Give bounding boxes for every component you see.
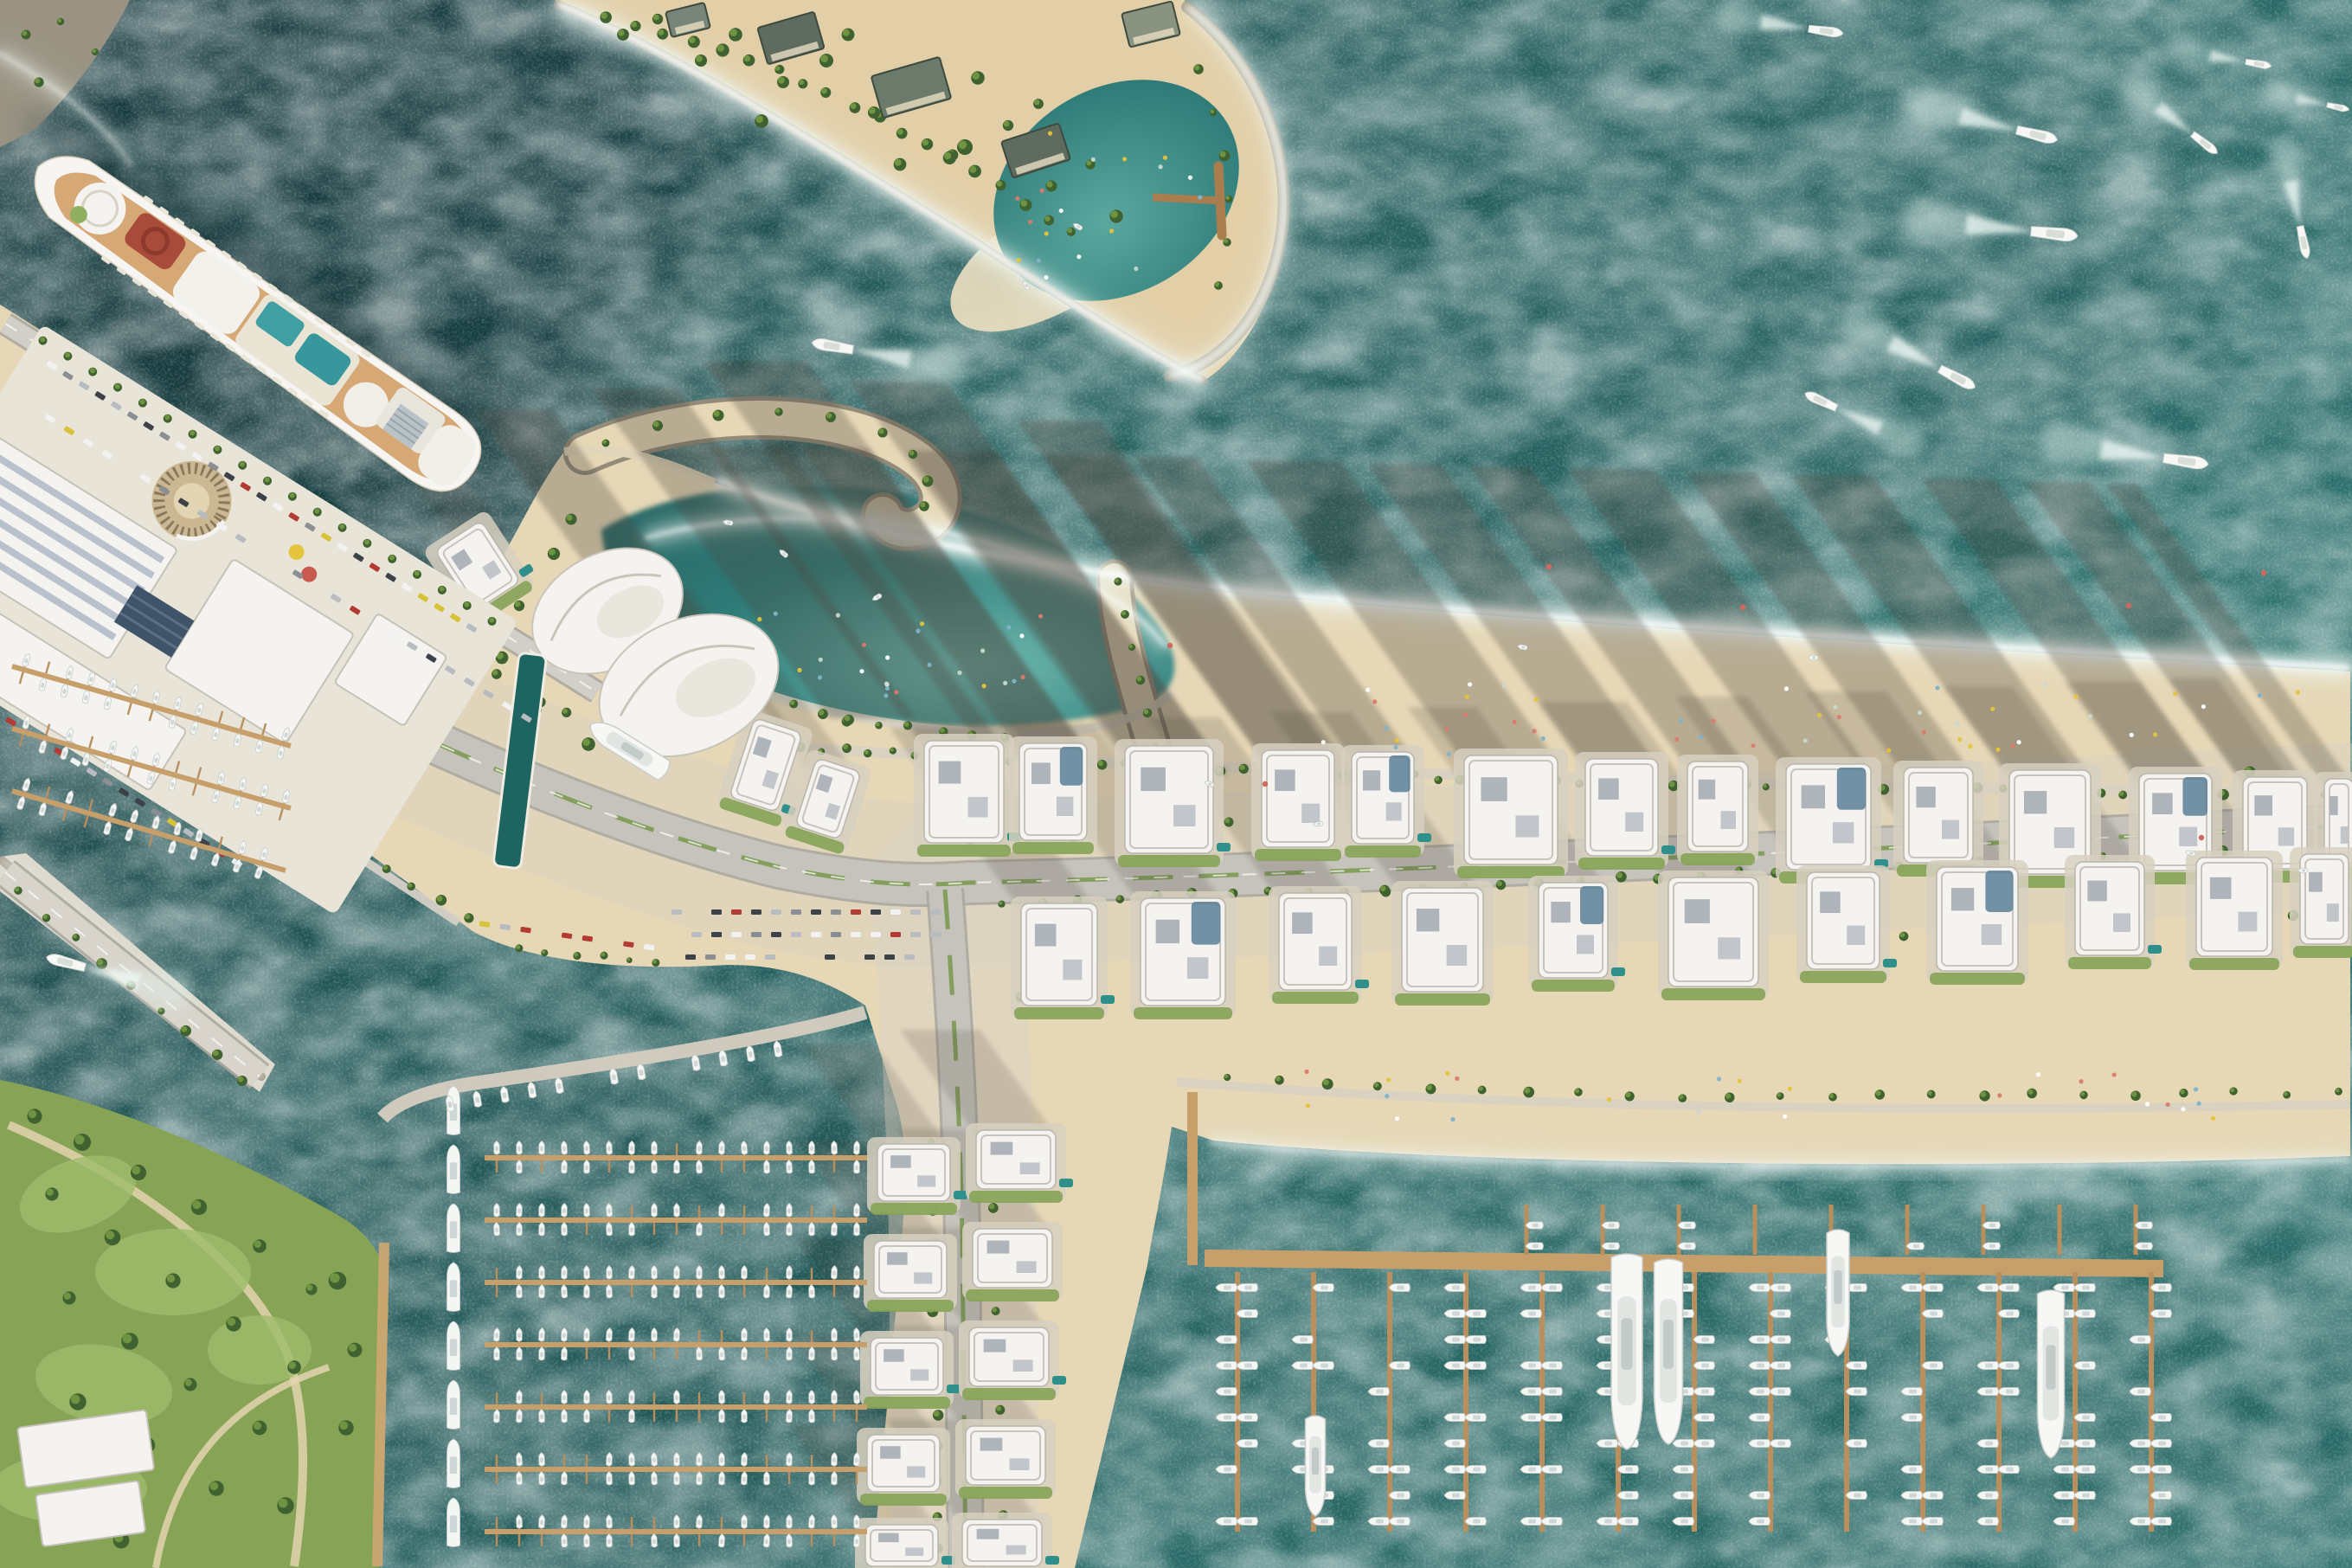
moored-boat	[1520, 1310, 1542, 1318]
moored-boat	[1541, 1518, 1563, 1526]
moored-boat	[2053, 1466, 2075, 1474]
moored-boat	[809, 1390, 815, 1404]
moored-boat	[494, 1203, 499, 1217]
moored-boat	[1693, 1336, 1715, 1344]
moored-boat	[1526, 1222, 1544, 1229]
moored-boat	[539, 1265, 545, 1279]
moored-boat	[1216, 1466, 1237, 1474]
moored-boat	[1749, 1336, 1770, 1344]
moored-boat	[1216, 1414, 1237, 1422]
tower	[1115, 739, 1231, 867]
moored-boat	[1770, 1362, 1791, 1370]
moored-boat	[539, 1284, 545, 1298]
moored-boat	[1597, 1518, 1618, 1526]
moored-boat	[562, 1409, 568, 1423]
moored-boat	[1846, 1388, 1867, 1396]
tower	[867, 1137, 967, 1215]
moored-boat	[2130, 1466, 2151, 1474]
moored-boat	[1998, 1362, 2020, 1370]
moored-boat	[854, 1203, 860, 1217]
moored-boat	[1520, 1284, 1542, 1292]
tower	[1269, 886, 1369, 1004]
moored-boat	[719, 1452, 725, 1466]
tower	[1454, 749, 1568, 878]
moored-boat	[1520, 1518, 1542, 1526]
moored-boat	[2150, 1466, 2172, 1474]
moored-boat	[1444, 1362, 1466, 1370]
moored-boat	[1444, 1492, 1466, 1500]
moored-boat	[742, 1514, 748, 1528]
moored-boat	[2053, 1518, 2075, 1526]
moored-boat	[539, 1203, 545, 1217]
moored-boat	[1216, 1362, 1237, 1370]
moored-boat	[2130, 1518, 2151, 1526]
moored-boat	[787, 1390, 793, 1404]
moored-boat	[562, 1203, 568, 1217]
moored-boat	[787, 1514, 792, 1528]
tower	[1575, 752, 1675, 870]
moored-boat	[2150, 1492, 2172, 1500]
tower	[959, 1321, 1066, 1400]
moored-boat	[1770, 1284, 1791, 1292]
moored-boat	[1901, 1518, 1923, 1526]
moored-boat	[584, 1533, 590, 1547]
moored-boat	[742, 1409, 748, 1423]
moored-boat	[2298, 869, 2309, 873]
moored-boat	[539, 1222, 545, 1236]
moored-boat	[2150, 1518, 2172, 1526]
moored-boat	[1906, 1243, 1925, 1250]
moored-boat	[2150, 1414, 2172, 1422]
moored-boat	[1237, 1414, 1258, 1422]
moored-boat	[1520, 1388, 1542, 1396]
moored-boat	[2074, 1440, 2096, 1448]
moored-boat	[697, 1265, 703, 1279]
moored-boat	[1617, 1466, 1639, 1474]
moored-boat	[1389, 1284, 1411, 1292]
moored-boat	[764, 1141, 770, 1154]
moored-boat	[1617, 1492, 1639, 1500]
buoy	[2261, 570, 2266, 575]
tower	[966, 1123, 1073, 1203]
tower	[857, 1428, 950, 1506]
moored-boat	[1770, 1310, 1791, 1318]
moored-boat	[517, 1265, 523, 1279]
moored-boat	[517, 1222, 523, 1236]
moored-boat	[1368, 1518, 1390, 1526]
yacht	[1306, 1416, 1326, 1516]
moored-boat	[854, 1222, 860, 1236]
moored-boat	[1998, 1284, 2020, 1292]
tower	[864, 1234, 957, 1312]
moored-boat	[652, 1141, 658, 1154]
tower	[1796, 865, 1897, 983]
moored-boat	[1901, 1492, 1923, 1500]
moored-boat	[854, 1160, 860, 1173]
tower	[914, 734, 1021, 857]
tower	[2186, 851, 2283, 970]
moored-boat	[1693, 1414, 1715, 1422]
moored-boat	[447, 1321, 460, 1371]
moored-boat	[1749, 1284, 1770, 1292]
tower	[1776, 757, 1888, 884]
moored-boat	[2074, 1284, 2096, 1292]
moored-boat	[1292, 1336, 1314, 1344]
yacht	[2038, 1290, 2065, 1458]
moored-boat	[1444, 1310, 1466, 1318]
moored-boat	[652, 1327, 658, 1341]
moored-boat	[697, 1452, 703, 1466]
tower	[962, 1222, 1063, 1301]
tower	[1251, 743, 1345, 861]
moored-boat	[1313, 1362, 1334, 1370]
moored-boat	[1520, 1362, 1542, 1370]
moored-boat	[1982, 1243, 2001, 1250]
moored-boat	[1693, 1388, 1715, 1396]
moored-boat	[742, 1265, 748, 1279]
moored-boat	[1602, 1222, 1620, 1229]
moored-boat	[2074, 1362, 2096, 1370]
moored-boat	[562, 1222, 568, 1236]
buoy	[1740, 605, 1745, 610]
moored-boat	[1389, 1466, 1411, 1474]
moored-boat	[1901, 1414, 1923, 1422]
moored-boat	[1977, 1284, 1999, 1292]
moored-boat	[1465, 1336, 1487, 1344]
moored-boat	[1846, 1362, 1867, 1370]
tower	[955, 1419, 1056, 1499]
tower	[1341, 745, 1431, 858]
moored-boat	[1541, 1362, 1563, 1370]
moored-boat	[1977, 1492, 1999, 1500]
moored-boat	[2074, 1310, 2096, 1318]
moored-boat	[1237, 1440, 1258, 1448]
moored-boat	[674, 1452, 680, 1466]
moored-boat	[697, 1141, 703, 1154]
moored-boat	[809, 1160, 815, 1173]
moored-boat	[584, 1390, 590, 1404]
buoy	[1546, 564, 1552, 569]
moored-boat	[584, 1284, 590, 1298]
tower	[1009, 736, 1097, 854]
tower	[1528, 876, 1625, 992]
moored-boat	[517, 1327, 523, 1341]
moored-boat	[629, 1141, 635, 1154]
moored-boat	[607, 1265, 612, 1279]
tower	[1893, 761, 1983, 877]
moored-boat	[1541, 1414, 1563, 1422]
tower	[1130, 891, 1236, 1019]
moored-boat	[1526, 1243, 1544, 1250]
moored-boat	[1444, 1284, 1466, 1292]
moored-boat	[1368, 1440, 1390, 1448]
moored-boat	[539, 1141, 544, 1154]
moored-boat	[1749, 1440, 1770, 1448]
moored-boat	[447, 1498, 460, 1547]
moored-boat	[1389, 1518, 1411, 1526]
moored-boat	[1922, 1310, 1944, 1318]
moored-boat	[1922, 1518, 1944, 1526]
moored-boat	[1292, 1362, 1314, 1370]
moored-boat	[1237, 1362, 1258, 1370]
moored-boat	[1922, 1284, 1944, 1292]
moored-boat	[1809, 656, 1819, 660]
moored-boat	[854, 1514, 860, 1528]
moored-boat	[1678, 1222, 1696, 1229]
tower	[1677, 755, 1758, 865]
moored-boat	[787, 1346, 793, 1360]
moored-boat	[2135, 1243, 2153, 1250]
moored-boat	[517, 1160, 523, 1173]
moored-boat	[674, 1390, 680, 1404]
moored-boat	[697, 1284, 703, 1298]
moored-boat	[629, 1222, 635, 1236]
tower	[952, 1513, 1059, 1568]
moored-boat	[2074, 1466, 2096, 1474]
moored-boat	[1541, 1466, 1563, 1474]
moored-boat	[652, 1284, 658, 1298]
moored-boat	[1901, 1388, 1923, 1396]
moored-boat	[787, 1203, 793, 1217]
moored-boat	[1770, 1388, 1791, 1396]
moored-boat	[674, 1533, 680, 1547]
moored-boat	[742, 1327, 748, 1341]
moored-boat	[1237, 1518, 1258, 1526]
moored-boat	[447, 1204, 460, 1253]
moored-boat	[1465, 1414, 1487, 1422]
moored-boat	[1998, 1388, 2020, 1396]
moored-boat	[1673, 1492, 1694, 1500]
moored-boat	[517, 1141, 523, 1154]
moored-boat	[1977, 1362, 1999, 1370]
moored-boat	[2150, 1440, 2172, 1448]
moored-boat	[809, 1471, 815, 1485]
moored-boat	[719, 1203, 725, 1217]
moored-boat	[2074, 1414, 2096, 1422]
moored-boat	[2130, 1440, 2151, 1448]
moored-boat	[1678, 1243, 1696, 1250]
moored-boat	[1465, 1518, 1487, 1526]
moored-boat	[1922, 1492, 1944, 1500]
moored-boat	[764, 1471, 770, 1485]
moored-boat	[2053, 1492, 2075, 1500]
moored-boat	[1749, 1414, 1770, 1422]
moored-boat	[652, 1203, 658, 1217]
moored-boat	[539, 1346, 545, 1360]
aerial-image	[0, 0, 2352, 1568]
moored-boat	[1216, 1518, 1237, 1526]
moored-boat	[652, 1265, 658, 1279]
moored-boat	[494, 1141, 500, 1154]
moored-boat	[1977, 1440, 1999, 1448]
moored-boat	[1998, 1310, 2020, 1318]
moored-boat	[2135, 1222, 2153, 1229]
moored-boat	[1444, 1336, 1466, 1344]
moored-boat	[1368, 1388, 1390, 1396]
tower	[1658, 871, 1769, 1000]
tower	[2065, 855, 2162, 969]
tower	[2290, 847, 2352, 958]
moored-boat	[674, 1471, 679, 1485]
moored-boat	[584, 1409, 590, 1423]
moored-boat	[1749, 1492, 1770, 1500]
moored-boat	[2074, 1492, 2096, 1500]
moored-boat	[1216, 1336, 1237, 1344]
moored-boat	[1770, 1336, 1791, 1344]
moored-boat	[607, 1471, 613, 1485]
yacht	[1827, 1230, 1849, 1356]
moored-boat	[1237, 1284, 1258, 1292]
moored-boat	[629, 1409, 635, 1423]
moored-boat	[1693, 1362, 1715, 1370]
tower	[1926, 860, 2028, 985]
moored-boat	[1846, 1440, 1867, 1448]
moored-boat	[674, 1160, 680, 1173]
moored-boat	[447, 1380, 460, 1430]
buoy	[2199, 835, 2204, 840]
moored-boat	[1216, 1284, 1237, 1292]
moored-boat	[1602, 1243, 1620, 1250]
moored-boat	[1541, 1388, 1563, 1396]
buoy	[1263, 781, 1268, 787]
moored-boat	[1520, 1466, 1542, 1474]
moored-boat	[719, 1390, 725, 1404]
moored-boat	[1901, 1284, 1923, 1292]
moored-boat	[1846, 1492, 1867, 1500]
moored-boat	[494, 1346, 500, 1360]
moored-boat	[1673, 1440, 1694, 1448]
moored-boat	[2150, 1310, 2172, 1318]
moored-boat	[1389, 1492, 1411, 1500]
moored-boat	[1770, 1440, 1791, 1448]
marina-boardwalk	[1205, 1258, 2163, 1269]
moored-boat	[719, 1141, 725, 1154]
moored-boat	[809, 1409, 815, 1423]
moored-boat	[517, 1346, 523, 1360]
moored-boat	[697, 1471, 703, 1485]
moored-boat	[447, 1439, 460, 1488]
moored-boat	[1673, 1466, 1694, 1474]
tower	[855, 1518, 955, 1568]
moored-boat	[764, 1514, 770, 1528]
moored-boat	[1465, 1310, 1487, 1318]
moored-boat	[809, 1141, 815, 1154]
moored-boat	[832, 1471, 838, 1485]
moored-boat	[719, 1265, 725, 1279]
aerial-render-scene	[0, 0, 2352, 1568]
buoy	[1167, 643, 1173, 648]
moored-boat	[1237, 1310, 1258, 1318]
moored-boat	[584, 1160, 589, 1173]
moored-boat	[1465, 1362, 1487, 1370]
moored-boat	[1444, 1466, 1466, 1474]
moored-boat	[1673, 1518, 1694, 1526]
moored-boat	[1749, 1518, 1770, 1526]
moored-boat	[1444, 1440, 1466, 1448]
moored-boat	[1541, 1284, 1563, 1292]
moored-boat	[447, 1263, 460, 1312]
moored-boat	[1922, 1362, 1944, 1370]
moored-boat	[1982, 1222, 2001, 1229]
moored-boat	[674, 1203, 680, 1217]
moored-boat	[1465, 1466, 1487, 1474]
moored-boat	[787, 1265, 793, 1279]
moored-boat	[447, 1145, 460, 1194]
moored-boat	[1901, 1466, 1923, 1474]
moored-boat	[1520, 1414, 1542, 1422]
moored-boat	[719, 1409, 725, 1423]
moored-boat	[1977, 1388, 1999, 1396]
tower	[860, 1331, 961, 1409]
moored-boat	[787, 1327, 793, 1341]
yacht	[1611, 1254, 1642, 1449]
moored-boat	[1749, 1388, 1770, 1396]
moored-boat	[1368, 1466, 1390, 1474]
yacht	[1655, 1259, 1683, 1444]
moored-boat	[1313, 1518, 1334, 1526]
moored-boat	[1313, 1284, 1334, 1292]
moored-boat	[1617, 1518, 1639, 1526]
moored-boat	[1389, 1362, 1411, 1370]
moored-boat	[1977, 1466, 1999, 1474]
tower	[1391, 881, 1494, 1006]
moored-boat	[1597, 1440, 1618, 1448]
moored-boat	[1749, 1362, 1770, 1370]
tower	[1011, 896, 1115, 1019]
moored-boat	[1998, 1466, 2020, 1474]
moored-boat	[1444, 1414, 1466, 1422]
moored-boat	[2150, 1284, 2172, 1292]
moored-boat	[832, 1327, 838, 1341]
moored-boat	[1216, 1388, 1237, 1396]
moored-boat	[562, 1390, 567, 1404]
moored-boat	[832, 1390, 838, 1404]
moored-boat	[517, 1390, 523, 1404]
moored-boat	[2130, 1336, 2151, 1344]
moored-boat	[1977, 1518, 1999, 1526]
moored-boat	[674, 1514, 680, 1528]
moored-boat	[1693, 1440, 1715, 1448]
buoy	[2126, 603, 2131, 608]
moored-boat	[809, 1222, 814, 1236]
moored-boat	[2130, 1388, 2151, 1396]
moored-boat	[629, 1160, 635, 1173]
moored-boat	[629, 1471, 635, 1485]
moored-boat	[607, 1533, 613, 1547]
